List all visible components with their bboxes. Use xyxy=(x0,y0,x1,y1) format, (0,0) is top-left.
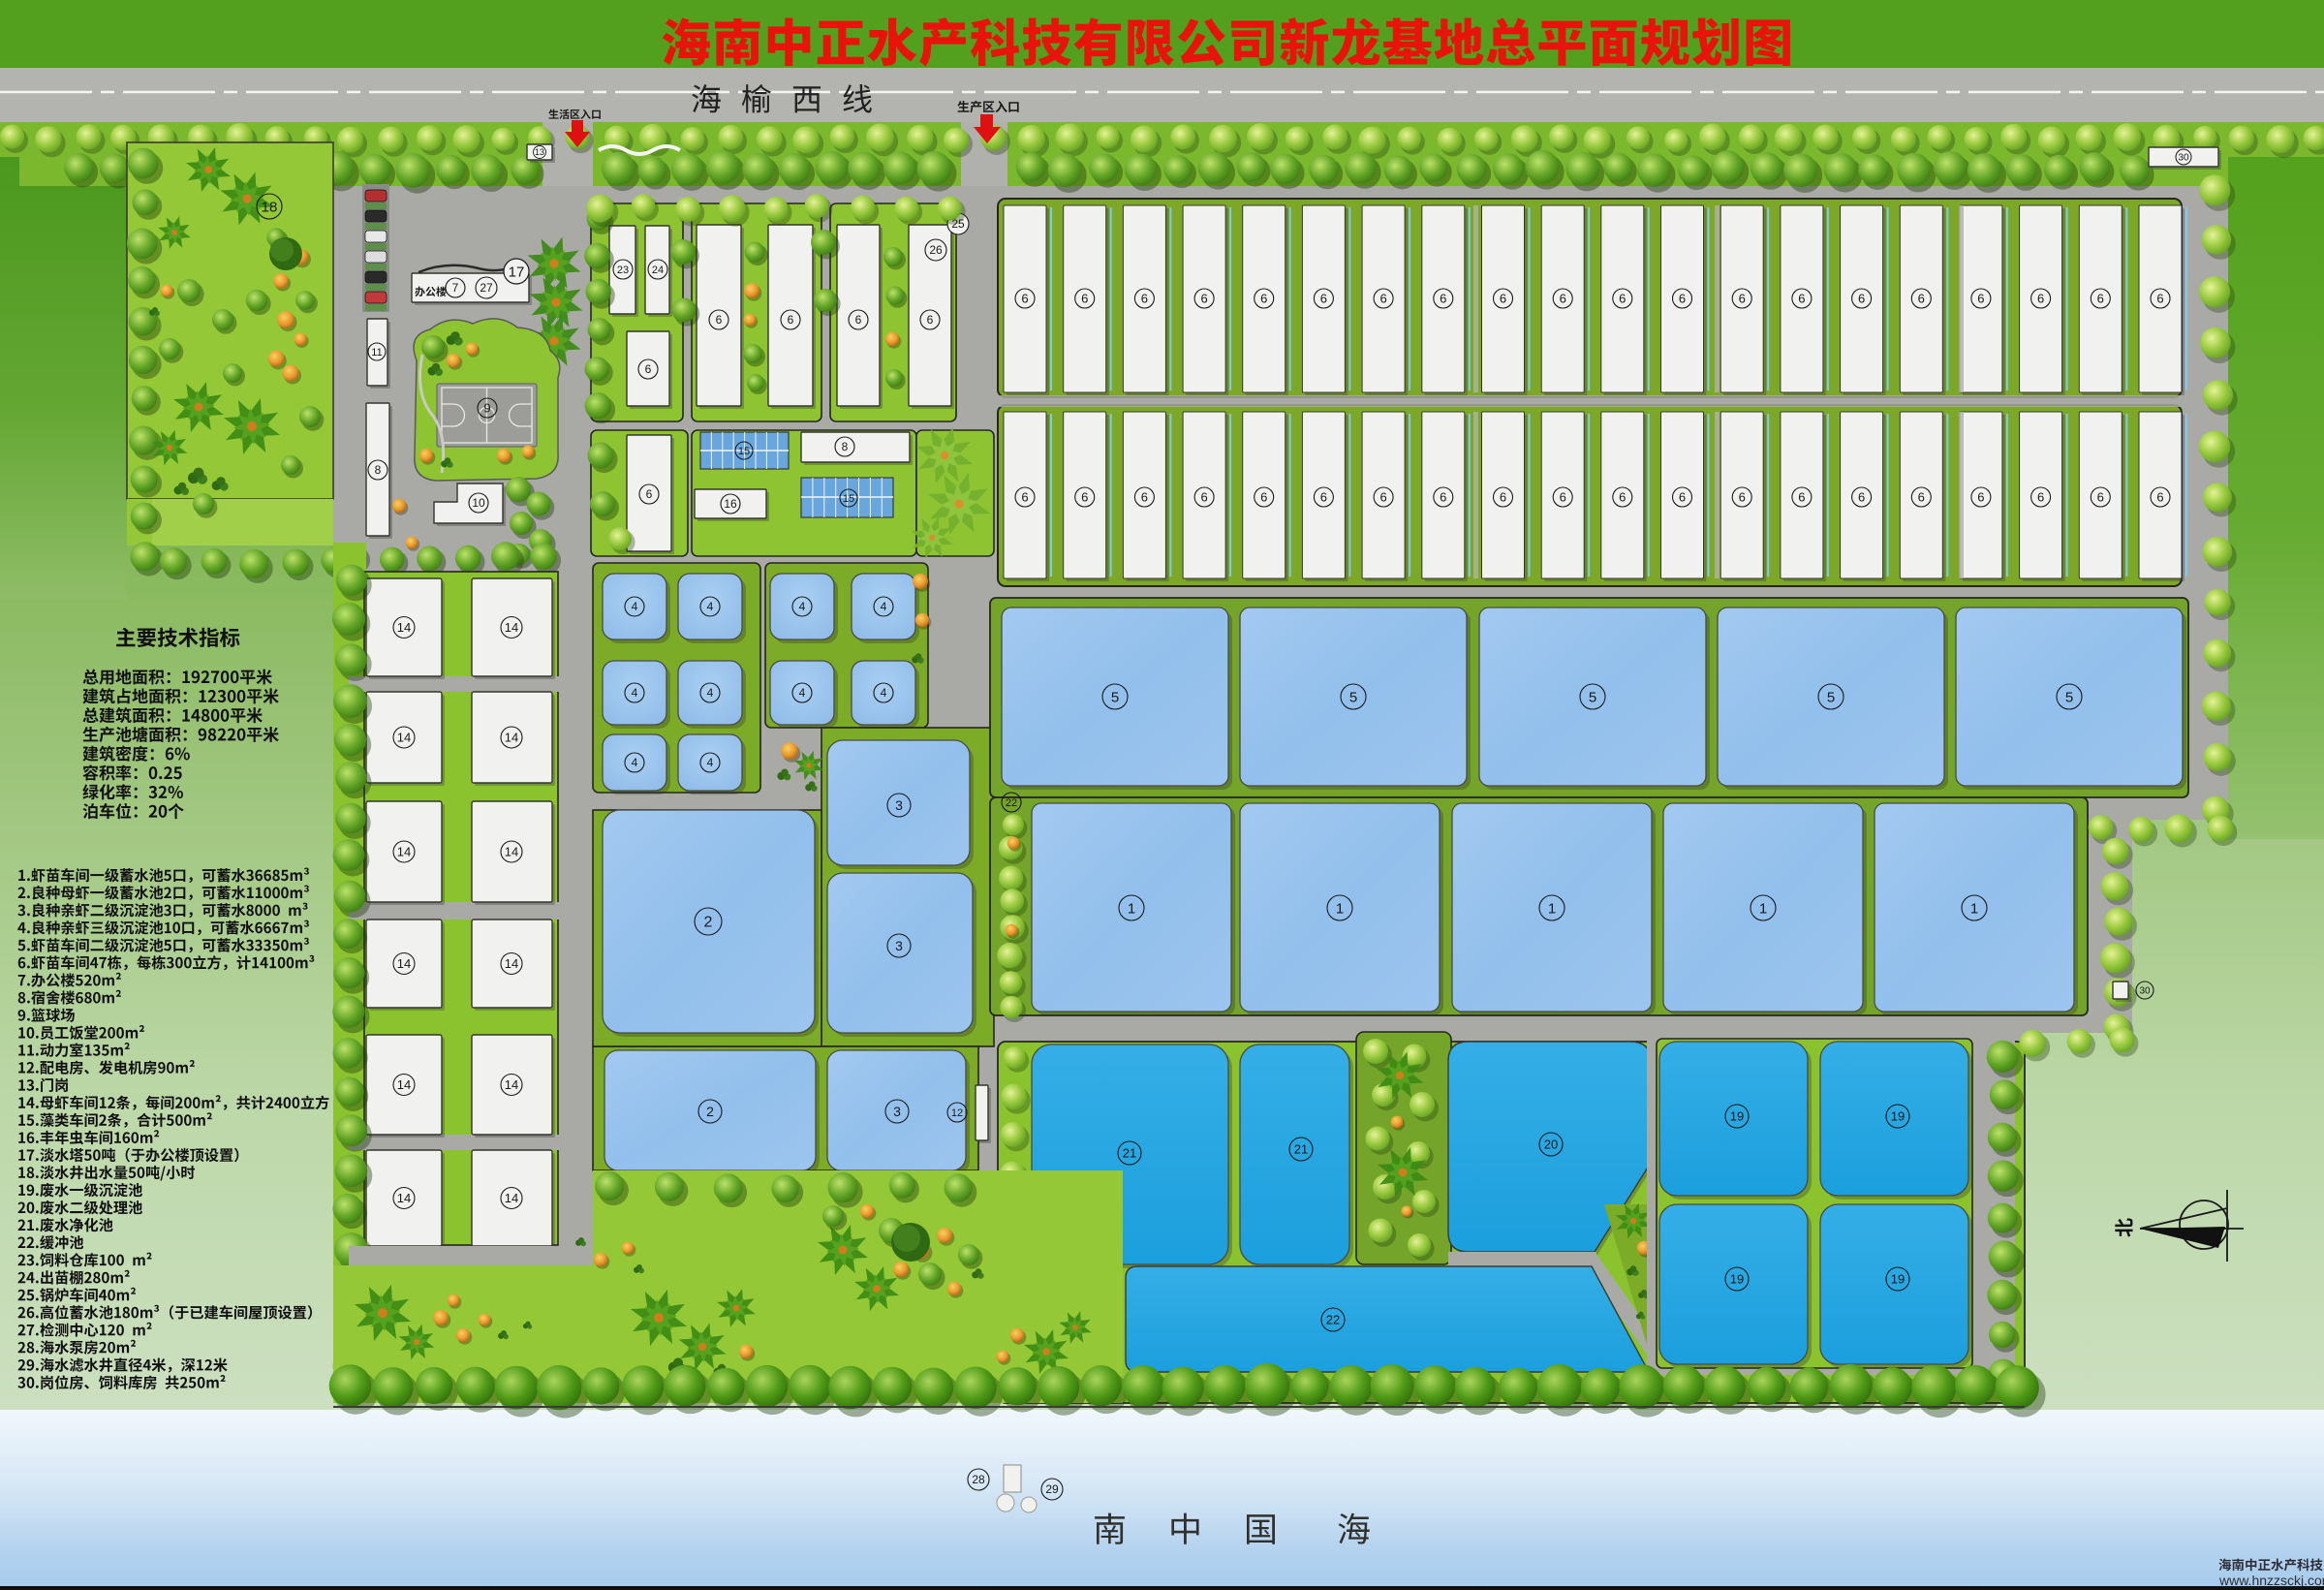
svg-text:7: 7 xyxy=(452,281,459,295)
svg-text:6: 6 xyxy=(1440,292,1446,306)
svg-text:6: 6 xyxy=(1918,292,1925,306)
svg-text:4: 4 xyxy=(707,686,714,700)
svg-text:5: 5 xyxy=(2065,689,2073,705)
svg-text:19: 19 xyxy=(1730,1272,1744,1287)
svg-text:6: 6 xyxy=(1560,490,1566,505)
svg-text:8: 8 xyxy=(842,440,849,453)
svg-text:19: 19 xyxy=(1891,1109,1905,1124)
svg-text:6: 6 xyxy=(1200,292,1207,306)
svg-text:13: 13 xyxy=(535,147,544,157)
svg-text:14: 14 xyxy=(505,620,518,635)
svg-text:17: 17 xyxy=(509,264,525,280)
svg-text:12: 12 xyxy=(951,1107,963,1119)
svg-text:8: 8 xyxy=(375,463,382,477)
svg-text:6: 6 xyxy=(1560,292,1566,306)
svg-text:14: 14 xyxy=(397,845,411,859)
svg-text:4: 4 xyxy=(632,600,638,613)
svg-text:6: 6 xyxy=(1858,490,1865,505)
svg-text:6: 6 xyxy=(1320,292,1327,306)
svg-text:22: 22 xyxy=(1006,797,1017,809)
svg-text:18: 18 xyxy=(262,199,278,215)
svg-text:14: 14 xyxy=(397,956,411,971)
svg-text:5: 5 xyxy=(1827,689,1835,705)
svg-text:4: 4 xyxy=(707,600,714,613)
svg-text:14: 14 xyxy=(397,1077,411,1092)
svg-text:29: 29 xyxy=(1045,1482,1059,1496)
svg-text:30: 30 xyxy=(2139,986,2151,997)
svg-text:4: 4 xyxy=(799,686,806,700)
svg-text:2: 2 xyxy=(704,915,713,931)
svg-text:6: 6 xyxy=(1798,292,1805,306)
svg-text:6: 6 xyxy=(716,313,723,327)
svg-text:6: 6 xyxy=(1500,490,1506,505)
svg-text:6: 6 xyxy=(1918,490,1925,505)
svg-text:4: 4 xyxy=(707,756,714,769)
svg-text:5: 5 xyxy=(1111,689,1119,705)
svg-text:4: 4 xyxy=(632,686,638,700)
svg-text:6: 6 xyxy=(1021,490,1028,505)
svg-text:1: 1 xyxy=(1128,900,1135,917)
svg-text:2: 2 xyxy=(706,1104,714,1119)
svg-text:5: 5 xyxy=(1589,689,1596,705)
svg-text:14: 14 xyxy=(505,731,518,745)
svg-text:6: 6 xyxy=(2156,490,2163,505)
svg-text:6: 6 xyxy=(1200,490,1207,505)
svg-text:6: 6 xyxy=(2037,490,2044,505)
svg-text:4: 4 xyxy=(632,756,638,769)
svg-text:14: 14 xyxy=(397,620,411,635)
svg-text:6: 6 xyxy=(1260,490,1267,505)
svg-text:6: 6 xyxy=(2156,292,2163,306)
svg-text:14: 14 xyxy=(505,845,518,859)
svg-text:14: 14 xyxy=(505,956,518,971)
svg-text:16: 16 xyxy=(724,497,737,511)
svg-text:6: 6 xyxy=(2097,292,2104,306)
svg-text:15: 15 xyxy=(738,446,750,457)
svg-text:3: 3 xyxy=(895,797,903,813)
svg-text:27: 27 xyxy=(480,281,493,295)
svg-text:23: 23 xyxy=(617,265,629,276)
svg-text:21: 21 xyxy=(1123,1146,1136,1161)
svg-text:5: 5 xyxy=(1349,689,1357,705)
svg-text:6: 6 xyxy=(645,362,652,376)
svg-text:6: 6 xyxy=(1977,490,1984,505)
svg-text:6: 6 xyxy=(1379,292,1386,306)
svg-text:3: 3 xyxy=(893,1104,901,1119)
svg-text:6: 6 xyxy=(1739,490,1746,505)
svg-text:6: 6 xyxy=(1320,490,1327,505)
svg-text:6: 6 xyxy=(1739,292,1746,306)
svg-text:6: 6 xyxy=(1679,292,1686,306)
svg-text:24: 24 xyxy=(652,265,664,276)
svg-text:30: 30 xyxy=(2178,153,2189,164)
svg-text:4: 4 xyxy=(881,600,887,613)
svg-text:6: 6 xyxy=(1260,292,1267,306)
svg-text:6: 6 xyxy=(855,313,862,327)
svg-text:6: 6 xyxy=(927,313,934,327)
svg-text:14: 14 xyxy=(505,1191,518,1205)
svg-text:6: 6 xyxy=(1679,490,1686,505)
svg-text:1: 1 xyxy=(1548,900,1556,917)
svg-text:4: 4 xyxy=(799,600,806,613)
svg-text:28: 28 xyxy=(972,1473,985,1486)
svg-text:6: 6 xyxy=(1619,490,1626,505)
svg-text:6: 6 xyxy=(1798,490,1805,505)
svg-text:3: 3 xyxy=(895,938,903,953)
svg-text:22: 22 xyxy=(1326,1313,1340,1327)
svg-text:1: 1 xyxy=(1970,900,1978,917)
svg-text:1: 1 xyxy=(1336,900,1344,917)
svg-text:6: 6 xyxy=(2097,490,2104,505)
svg-text:6: 6 xyxy=(646,487,653,501)
svg-text:21: 21 xyxy=(1294,1142,1308,1157)
svg-text:6: 6 xyxy=(2037,292,2044,306)
svg-text:6: 6 xyxy=(788,313,794,327)
svg-text:4: 4 xyxy=(881,686,887,700)
svg-text:6: 6 xyxy=(1440,490,1446,505)
svg-text:20: 20 xyxy=(1544,1138,1558,1152)
svg-text:6: 6 xyxy=(1021,292,1028,306)
svg-text:1: 1 xyxy=(1759,900,1767,917)
svg-text:19: 19 xyxy=(1730,1109,1744,1124)
svg-text:26: 26 xyxy=(929,243,943,257)
svg-text:6: 6 xyxy=(1977,292,1984,306)
svg-text:6: 6 xyxy=(1081,292,1088,306)
svg-text:6: 6 xyxy=(1141,292,1148,306)
svg-text:14: 14 xyxy=(505,1077,518,1092)
svg-text:6: 6 xyxy=(1500,292,1506,306)
svg-text:6: 6 xyxy=(1619,292,1626,306)
svg-text:11: 11 xyxy=(371,347,382,359)
svg-text:6: 6 xyxy=(1858,292,1865,306)
svg-text:14: 14 xyxy=(397,731,411,745)
svg-text:6: 6 xyxy=(1141,490,1148,505)
svg-text:10: 10 xyxy=(472,496,485,510)
svg-text:www.hnzzsckj.com: www.hnzzsckj.com xyxy=(2218,1573,2324,1588)
svg-text:6: 6 xyxy=(1081,490,1088,505)
svg-text:9: 9 xyxy=(483,401,490,416)
svg-text:14: 14 xyxy=(397,1191,411,1205)
svg-text:19: 19 xyxy=(1891,1272,1905,1287)
svg-text:6: 6 xyxy=(1379,490,1386,505)
svg-text:15: 15 xyxy=(843,493,854,505)
